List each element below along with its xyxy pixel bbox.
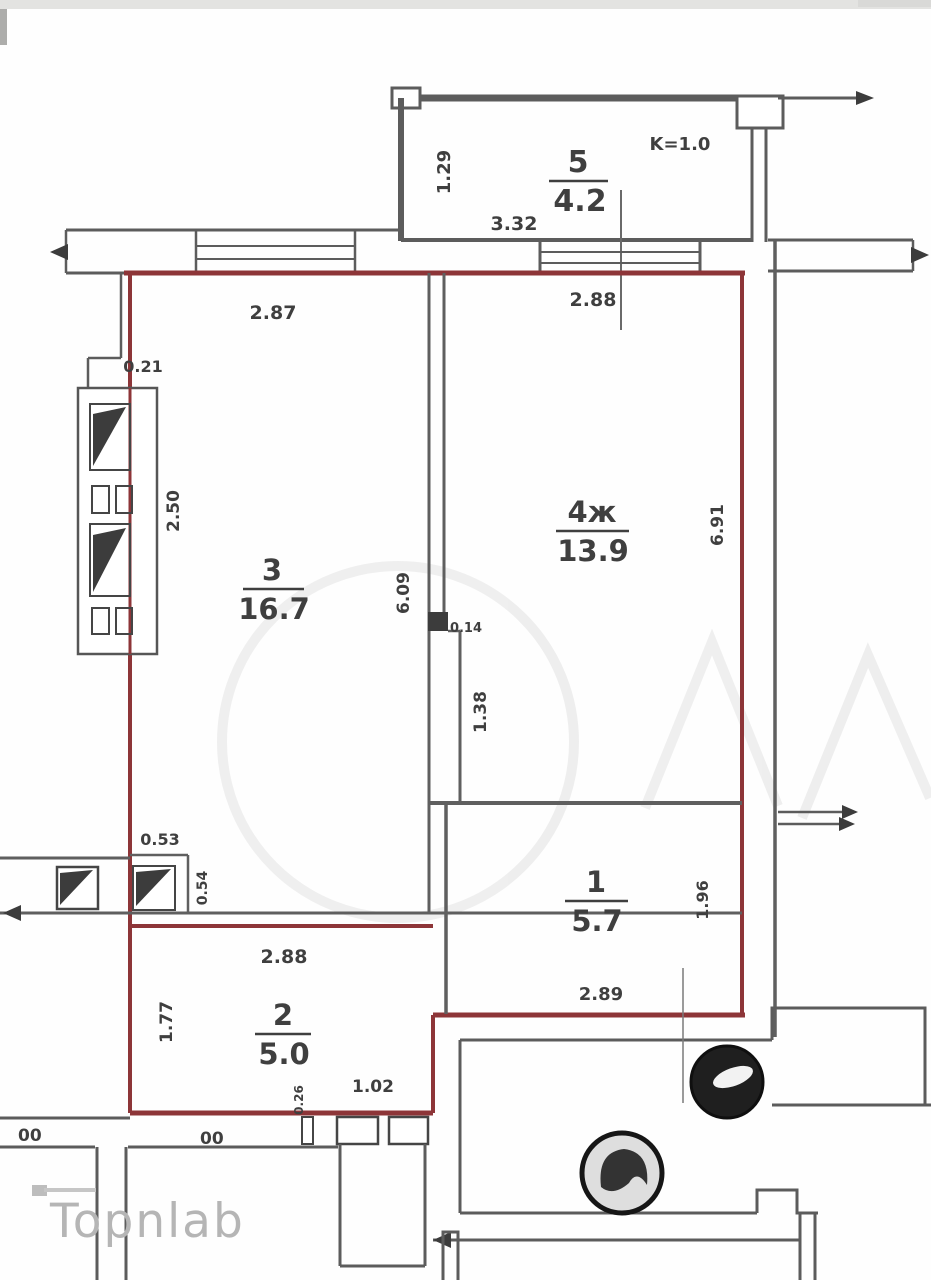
room-5-area: 4.2 <box>553 184 606 219</box>
dim-left-step: 0.21 <box>123 357 162 376</box>
window-room3-top <box>196 230 355 272</box>
arrow-left-corridor-icon <box>3 905 21 921</box>
dim-wall-jog: 0.14 <box>450 621 482 636</box>
hall-window-symbols <box>57 866 175 910</box>
room-4-number: 4ж <box>567 495 616 529</box>
floor-plan-page: 5 4.2 3 16.7 4ж 13.9 1 5.7 2 5.0 K=1.0 3… <box>0 0 931 1280</box>
duct-mark-right: 00 <box>200 1129 224 1149</box>
dim-coefficient: K=1.0 <box>650 134 711 155</box>
wall-jog-block <box>428 612 448 631</box>
dim-room4-side: 6.91 <box>708 504 728 546</box>
room-3-number: 3 <box>262 553 282 587</box>
dim-door-step: 0.26 <box>292 1085 306 1115</box>
room-1-label: 1 5.7 <box>565 865 628 938</box>
brand-watermark-text: Topnlab <box>49 1194 245 1249</box>
dimension-labels: K=1.0 3.32 1.29 2.87 2.88 0.21 2.50 6.09… <box>123 134 728 1115</box>
dim-room4-top: 2.88 <box>570 289 617 311</box>
faint-watermark-shapes <box>222 566 930 918</box>
dim-balcony-depth: 1.29 <box>434 150 455 194</box>
dim-room1-bottom: 2.89 <box>579 984 623 1005</box>
room-2-number: 2 <box>273 998 293 1032</box>
arrow-top-left-icon <box>50 244 68 260</box>
dim-window-span: 2.50 <box>164 490 184 532</box>
arrow-right-mid-icon <box>839 817 855 831</box>
dim-hall-top: 0.53 <box>140 830 179 849</box>
brand-watermark: Topnlab <box>32 1185 245 1249</box>
room-1-area: 5.7 <box>571 904 622 938</box>
arrow-top-right-icon <box>856 91 874 105</box>
dim-balcony-width: 3.32 <box>491 213 538 235</box>
arrow-right-mid-icon <box>842 805 858 819</box>
scan-artifacts <box>0 0 931 45</box>
fixture-circle-top <box>691 1046 763 1118</box>
apartment-boundary <box>124 273 745 1113</box>
top-corridor-walls <box>66 230 398 390</box>
left-window-assembly <box>78 388 157 654</box>
room-3-area: 16.7 <box>238 592 310 626</box>
right-middle-arrows <box>778 812 843 824</box>
floor-plan-svg: 5 4.2 3 16.7 4ж 13.9 1 5.7 2 5.0 K=1.0 3… <box>0 0 931 1280</box>
top-right-corridor <box>768 240 913 271</box>
fixture-circle-bottom <box>582 1133 662 1213</box>
dim-room1-side: 1.96 <box>693 880 712 919</box>
room-1-number: 1 <box>586 865 606 899</box>
dim-room2-top: 2.88 <box>261 946 308 968</box>
dim-room3-top: 2.87 <box>250 302 297 324</box>
duct-mark-left: 00 <box>18 1126 42 1146</box>
room-3-label: 3 16.7 <box>238 553 310 626</box>
room-5-label: 5 4.2 <box>549 145 608 219</box>
dim-room3-side: 6.09 <box>394 572 414 614</box>
room-2-label: 2 5.0 <box>255 998 311 1071</box>
dim-room2-side: 1.77 <box>157 1001 177 1043</box>
room-4-label: 4ж 13.9 <box>556 495 629 568</box>
dim-door: 1.02 <box>352 1077 394 1097</box>
balcony-walls <box>392 88 858 330</box>
arrow-right-corridor-icon <box>911 247 929 263</box>
bottom-windows <box>302 1117 428 1144</box>
room-5-number: 5 <box>568 145 589 180</box>
dim-hall-side: 0.54 <box>195 870 211 905</box>
room-2-area: 5.0 <box>258 1037 309 1071</box>
room-4-area: 13.9 <box>557 534 629 568</box>
dim-niche: 1.38 <box>471 691 491 733</box>
